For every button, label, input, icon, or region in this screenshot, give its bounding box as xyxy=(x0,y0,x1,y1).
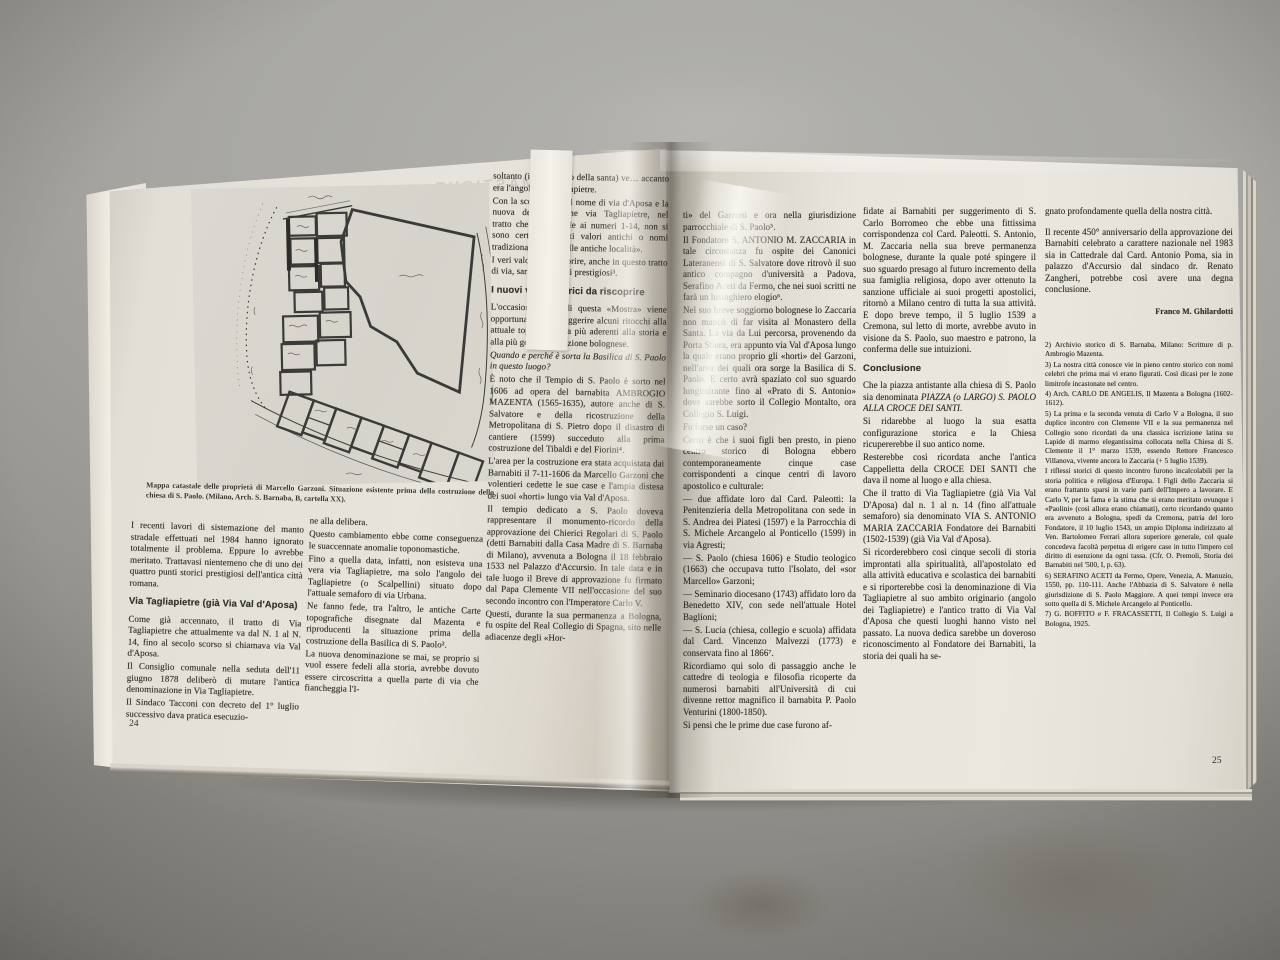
paragraph: Il Sindaco Tacconi con decreto del 1° lu… xyxy=(126,697,300,725)
right-page-top-curl xyxy=(660,140,1245,174)
right-column-2: fidate ai Barnabiti per suggerimento di … xyxy=(863,206,1036,772)
footnote: I riflessi storici di questo incontro fu… xyxy=(1045,467,1233,570)
footnote: 7) G. BOFFITO e F. FRACASSETTI, Il Colle… xyxy=(1045,610,1233,629)
page-number-right: 25 xyxy=(1212,756,1222,766)
paragraph: Ne fanno fede, tra l'altro, le antiche C… xyxy=(306,600,481,651)
paragraph: Si ricorderebbero così cinque secoli di … xyxy=(863,547,1036,662)
bookmark-slip xyxy=(525,149,572,350)
paragraph: Il Consiglio comunale nella seduta dell'… xyxy=(126,661,300,700)
footnote: 3) La nostra città conosce vie in pieno … xyxy=(1045,361,1233,389)
surface-stain xyxy=(690,870,830,940)
cadastral-map xyxy=(191,183,495,487)
section-heading-conclusione: Conclusione xyxy=(863,363,1036,375)
footnote: 5) La prima e la seconda venuta di Carlo… xyxy=(1045,410,1233,466)
right-column-3: gnato profondamente quella della nostra … xyxy=(1045,206,1233,772)
paragraph: I recenti lavori di sistemazione del man… xyxy=(129,520,304,594)
left-column-1: I recenti lavori di sistemazione del man… xyxy=(125,520,304,753)
footnote: 2) Archivio storico di S. Barnaba, Milan… xyxy=(1045,341,1233,360)
footnotes-block: 2) Archivio storico di S. Barnaba, Milan… xyxy=(1045,341,1233,629)
page-stack-edge-right xyxy=(1243,170,1257,794)
paragraph: Questo cambiamento ebbe come conseguenza… xyxy=(309,528,484,556)
section-heading-via-tagliapietre: Via Tagliapietre (già Via Val d'Aposa) xyxy=(129,596,302,612)
left-column-2: ne alla delibera. Questo cambiamento ebb… xyxy=(302,515,484,762)
page-number-left: 24 xyxy=(129,719,139,729)
paragraph: Che il tratto di Via Tagliapietre (già V… xyxy=(863,488,1036,546)
paragraph: Resterebbe così ricordata anche l'antica… xyxy=(863,452,1036,487)
photo-of-open-book: { "colors": { "surface_gray": "#a7a6a2",… xyxy=(0,0,1280,960)
paragraph: Fino a quella data, infatti, non esistev… xyxy=(307,553,482,604)
paragraph: Si ridarebbe al luogo la sua esatta conf… xyxy=(863,416,1036,451)
paragraph: fidate ai Barnabiti per suggerimento di … xyxy=(863,206,1036,356)
paragraph: La nuova denominazione se mai, se propri… xyxy=(304,648,479,699)
author-signature: Franco M. Ghilardotti xyxy=(1045,306,1233,318)
cadastral-map-drawing xyxy=(191,183,495,487)
page-stack-edge-bottom xyxy=(680,789,1252,801)
footnote: 6) SERAFINO ACETI da Fermo, Opere, Venez… xyxy=(1045,572,1233,610)
paragraph: Come già accennato, il tratto di Via Tag… xyxy=(127,613,301,664)
paragraph: Il recente 450° anniversario della appro… xyxy=(1045,227,1233,296)
footnote: 4) Arch. CARLO DE ANGELIS, Il Mazenta a … xyxy=(1045,390,1233,409)
surface-stain xyxy=(950,820,1190,940)
paragraph: Che la piazza antistante alla chiesa di … xyxy=(863,380,1036,415)
paragraph: gnato profondamente quella della nostra … xyxy=(1045,206,1233,218)
